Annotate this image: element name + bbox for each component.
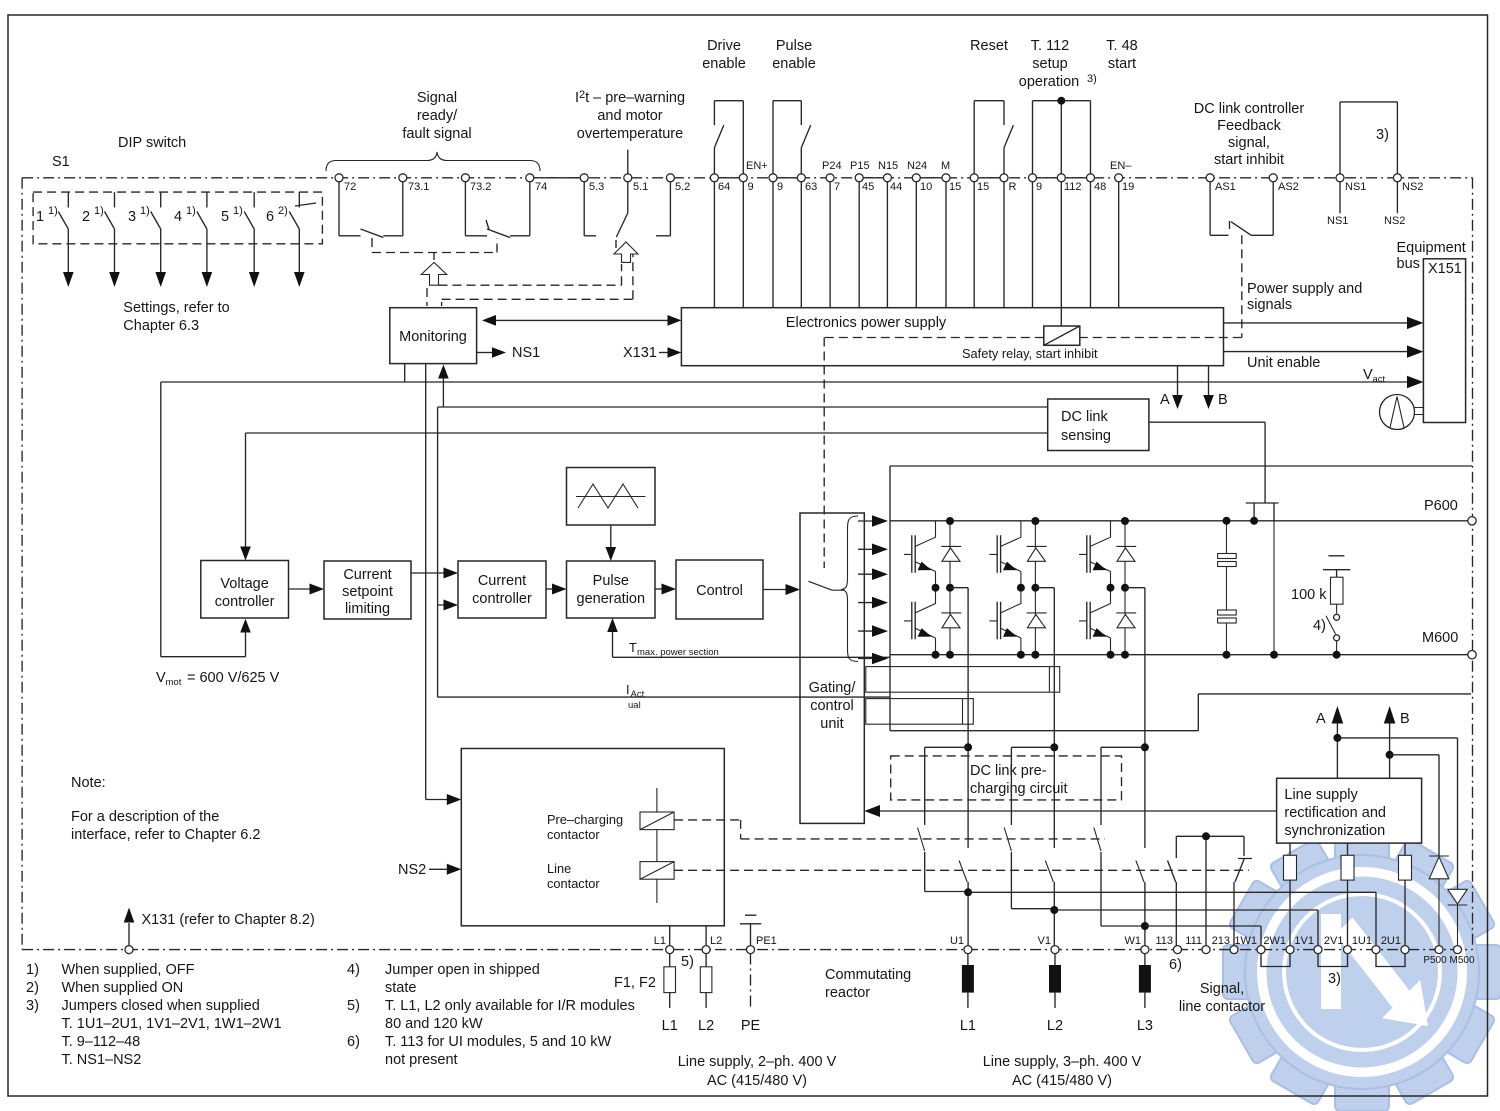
svg-text:Control: Control [696, 583, 743, 599]
svg-text:fault signal: fault signal [402, 126, 471, 142]
svg-text:generation: generation [577, 591, 646, 607]
svg-text:contactor: contactor [547, 827, 600, 842]
svg-text:enable: enable [772, 56, 816, 72]
svg-text:2U1: 2U1 [1381, 935, 1401, 947]
svg-text:64: 64 [718, 181, 730, 193]
svg-text:Voltage: Voltage [220, 576, 268, 592]
svg-text:1): 1) [140, 205, 150, 217]
svg-text:Pre–charging: Pre–charging [547, 812, 623, 827]
svg-text:111: 111 [1185, 935, 1202, 947]
svg-text:Jumpers closed when supplied: Jumpers closed when supplied [62, 998, 260, 1014]
svg-text:6: 6 [266, 209, 274, 225]
svg-text:73.1: 73.1 [408, 181, 429, 193]
svg-text:V: V [1363, 367, 1373, 383]
svg-text:I: I [626, 682, 630, 697]
svg-text:EN+: EN+ [746, 160, 768, 172]
svg-text:NS2: NS2 [1384, 215, 1405, 227]
svg-text:AS1: AS1 [1215, 181, 1236, 193]
svg-text:3): 3) [1328, 971, 1341, 987]
svg-text:2): 2) [26, 980, 39, 996]
svg-text:A: A [1316, 711, 1326, 727]
svg-text:L1: L1 [654, 935, 666, 947]
svg-text:Line supply, 3–ph. 400 V: Line supply, 3–ph. 400 V [983, 1054, 1142, 1070]
svg-text:controller: controller [472, 591, 532, 607]
svg-text:unit: unit [820, 716, 843, 732]
svg-text:Line supply, 2–ph. 400 V: Line supply, 2–ph. 400 V [678, 1054, 837, 1070]
svg-text:L3: L3 [1137, 1018, 1153, 1034]
svg-text:Pulse: Pulse [593, 573, 629, 589]
svg-text:213: 213 [1212, 935, 1230, 947]
svg-text:3): 3) [1376, 127, 1389, 143]
svg-text:7: 7 [834, 181, 840, 193]
svg-text:2: 2 [82, 209, 90, 225]
svg-text:1): 1) [48, 205, 58, 217]
svg-text:setup: setup [1032, 56, 1067, 72]
svg-text:6): 6) [347, 1034, 360, 1050]
svg-text:contactor: contactor [547, 876, 600, 891]
svg-text:Line: Line [547, 861, 571, 876]
svg-text:100 k: 100 k [1291, 587, 1327, 603]
svg-text:1W1: 1W1 [1234, 935, 1257, 947]
svg-text:113: 113 [1155, 935, 1173, 947]
svg-text:DC link controller: DC link controller [1194, 101, 1305, 117]
svg-text:L2: L2 [1047, 1018, 1063, 1034]
svg-text:EN–: EN– [1110, 160, 1132, 172]
svg-text:72: 72 [344, 181, 356, 193]
svg-text:T. 113 for UI modules, 5 and 1: T. 113 for UI modules, 5 and 10 kW [385, 1034, 612, 1050]
svg-text:act: act [1373, 374, 1386, 385]
svg-text:T. NS1–NS2: T. NS1–NS2 [62, 1052, 142, 1068]
svg-text:AC (415/480 V): AC (415/480 V) [1012, 1073, 1112, 1089]
svg-text:P24: P24 [822, 160, 842, 172]
svg-text:X151: X151 [1428, 261, 1462, 277]
svg-text:V1: V1 [1038, 935, 1051, 947]
svg-text:sensing: sensing [1061, 428, 1111, 444]
svg-text:Current: Current [478, 573, 526, 589]
svg-text:mot: mot [166, 677, 182, 688]
svg-text:Power supply and: Power supply and [1247, 281, 1362, 297]
svg-text:X131 (refer to Chapter 8.2): X131 (refer to Chapter 8.2) [142, 912, 315, 928]
svg-text:Act: Act [631, 689, 645, 700]
svg-text:1): 1) [186, 205, 196, 217]
svg-text:Pulse: Pulse [776, 38, 812, 54]
svg-text:operation: operation [1019, 74, 1079, 90]
svg-text:and motor: and motor [597, 108, 662, 124]
svg-text:15: 15 [949, 181, 961, 193]
svg-text:state: state [385, 980, 416, 996]
svg-text:5): 5) [347, 998, 360, 1014]
svg-text:NS1: NS1 [1327, 215, 1348, 227]
svg-text:5.3: 5.3 [589, 181, 604, 193]
svg-text:T. 9–112–48: T. 9–112–48 [62, 1034, 141, 1050]
svg-text:B: B [1218, 392, 1228, 408]
svg-text:DIP switch: DIP switch [118, 135, 186, 151]
svg-text:Unit enable: Unit enable [1247, 355, 1320, 371]
svg-text:setpoint: setpoint [342, 584, 393, 600]
svg-text:80 and 120 kW: 80 and 120 kW [385, 1016, 483, 1032]
svg-text:bus: bus [1397, 256, 1420, 272]
svg-text:start: start [1108, 56, 1136, 72]
svg-text:PE1: PE1 [756, 935, 777, 947]
svg-text:NS2: NS2 [1402, 181, 1423, 193]
svg-text:Gating/: Gating/ [809, 680, 857, 696]
svg-text:Reset: Reset [970, 38, 1008, 54]
svg-text:Feedback: Feedback [1217, 118, 1281, 134]
svg-text:9: 9 [748, 181, 754, 193]
svg-text:T. 112: T. 112 [1031, 38, 1069, 54]
svg-text:DC link: DC link [1061, 409, 1108, 425]
svg-text:NS1: NS1 [512, 345, 540, 361]
svg-text:B: B [1400, 711, 1410, 727]
svg-text:A: A [1160, 392, 1170, 408]
svg-text:reactor: reactor [825, 985, 870, 1001]
svg-text:M600: M600 [1422, 630, 1458, 646]
svg-text:Monitoring: Monitoring [399, 329, 467, 345]
svg-text:9: 9 [1036, 181, 1042, 193]
svg-text:I2t – pre–warning: I2t – pre–warning [575, 89, 685, 106]
svg-text:10: 10 [920, 181, 932, 193]
svg-text:rectification and: rectification and [1284, 805, 1386, 821]
svg-text:R: R [1009, 181, 1017, 193]
svg-text:1): 1) [94, 205, 104, 217]
svg-text:Current: Current [343, 567, 391, 583]
svg-text:control: control [810, 698, 854, 714]
svg-text:Safety relay, start inhibit: Safety relay, start inhibit [962, 346, 1098, 361]
svg-text:6): 6) [1169, 957, 1182, 973]
svg-text:AC (415/480 V): AC (415/480 V) [707, 1073, 807, 1089]
svg-text:V: V [156, 670, 166, 686]
svg-text:73.2: 73.2 [470, 181, 491, 193]
svg-text:T: T [629, 640, 637, 655]
svg-text:F1, F2: F1, F2 [614, 975, 656, 991]
svg-text:Equipment: Equipment [1397, 240, 1466, 256]
svg-text:N24: N24 [907, 160, 927, 172]
svg-text:2): 2) [278, 205, 288, 217]
svg-text:ready/: ready/ [417, 108, 458, 124]
svg-text:charging circuit: charging circuit [970, 781, 1068, 797]
svg-text:1: 1 [36, 209, 44, 225]
svg-text:L2: L2 [710, 935, 722, 947]
svg-text:5.2: 5.2 [675, 181, 690, 193]
svg-text:1V1: 1V1 [1294, 935, 1314, 947]
svg-text:= 600 V/625 V: = 600 V/625 V [187, 670, 280, 686]
svg-text:Electronics power supply: Electronics power supply [786, 315, 947, 331]
svg-text:U1: U1 [950, 935, 964, 947]
svg-text:line contactor: line contactor [1179, 999, 1265, 1015]
svg-text:Signal: Signal [417, 90, 457, 106]
svg-text:48: 48 [1094, 181, 1106, 193]
svg-text:44: 44 [890, 181, 902, 193]
svg-text:T. 1U1–2U1, 1V1–2V1, 1W1–2W1: T. 1U1–2U1, 1V1–2V1, 1W1–2W1 [62, 1016, 282, 1032]
svg-text:S1: S1 [52, 154, 70, 170]
svg-text:When supplied, OFF: When supplied, OFF [62, 962, 195, 978]
svg-text:T. 48: T. 48 [1106, 38, 1137, 54]
svg-text:PE: PE [741, 1018, 761, 1034]
svg-text:signals: signals [1247, 297, 1292, 313]
svg-text:X131: X131 [623, 345, 657, 361]
svg-text:1): 1) [26, 962, 39, 978]
svg-text:L1: L1 [662, 1018, 678, 1034]
svg-text:P500: P500 [1423, 955, 1447, 966]
svg-text:DC link pre-: DC link pre- [970, 763, 1047, 779]
svg-text:interface, refer to Chapter 6.: interface, refer to Chapter 6.2 [71, 827, 260, 843]
svg-text:15: 15 [977, 181, 989, 193]
svg-text:9: 9 [777, 181, 783, 193]
svg-text:3): 3) [1087, 73, 1097, 85]
svg-text:1U1: 1U1 [1352, 935, 1372, 947]
svg-text:P600: P600 [1424, 498, 1458, 514]
svg-text:overtemperature: overtemperature [577, 126, 683, 142]
svg-text:63: 63 [805, 181, 817, 193]
svg-text:start inhibit: start inhibit [1214, 152, 1284, 168]
svg-text:synchronization: synchronization [1284, 823, 1385, 839]
svg-text:19: 19 [1122, 181, 1134, 193]
svg-text:M: M [941, 160, 950, 172]
svg-text:3: 3 [128, 209, 136, 225]
svg-text:Signal,: Signal, [1200, 981, 1244, 997]
svg-text:Line supply: Line supply [1284, 787, 1358, 803]
svg-text:N15: N15 [878, 160, 898, 172]
svg-text:5: 5 [221, 209, 229, 225]
svg-text:max. power section: max. power section [637, 647, 719, 658]
svg-text:4): 4) [1313, 618, 1326, 634]
svg-text:74: 74 [535, 181, 547, 193]
svg-text:When supplied ON: When supplied ON [62, 980, 184, 996]
svg-text:Drive: Drive [707, 38, 741, 54]
svg-text:L2: L2 [698, 1018, 714, 1034]
svg-text:enable: enable [702, 56, 746, 72]
svg-text:M500: M500 [1449, 955, 1474, 966]
svg-text:limiting: limiting [345, 601, 390, 617]
svg-text:2V1: 2V1 [1324, 935, 1344, 947]
svg-text:NS1: NS1 [1345, 181, 1366, 193]
svg-text:not present: not present [385, 1052, 458, 1068]
svg-text:AS2: AS2 [1278, 181, 1299, 193]
svg-text:Chapter 6.3: Chapter 6.3 [123, 318, 199, 334]
svg-text:2W1: 2W1 [1263, 935, 1286, 947]
svg-text:5.1: 5.1 [633, 181, 648, 193]
svg-text:1): 1) [233, 205, 243, 217]
svg-text:ual: ual [628, 700, 641, 711]
svg-text:NS2: NS2 [398, 862, 426, 878]
svg-text:Settings, refer to: Settings, refer to [123, 300, 229, 316]
svg-text:112: 112 [1064, 181, 1082, 193]
svg-text:For a description of the: For a description of the [71, 809, 219, 825]
svg-text:3): 3) [26, 998, 39, 1014]
svg-text:P15: P15 [850, 160, 870, 172]
svg-text:L1: L1 [960, 1018, 976, 1034]
svg-text:signal,: signal, [1228, 135, 1270, 151]
svg-text:Jumper open in shipped: Jumper open in shipped [385, 962, 540, 978]
svg-text:W1: W1 [1125, 935, 1142, 947]
svg-text:T. L1, L2 only available for I: T. L1, L2 only available for I/R modules [385, 998, 635, 1014]
svg-text:4): 4) [347, 962, 360, 978]
svg-text:45: 45 [862, 181, 874, 193]
svg-text:5): 5) [681, 954, 694, 970]
svg-text:4: 4 [174, 209, 182, 225]
svg-text:Note:: Note: [71, 775, 106, 791]
svg-text:Commutating: Commutating [825, 967, 911, 983]
svg-text:controller: controller [215, 594, 275, 610]
